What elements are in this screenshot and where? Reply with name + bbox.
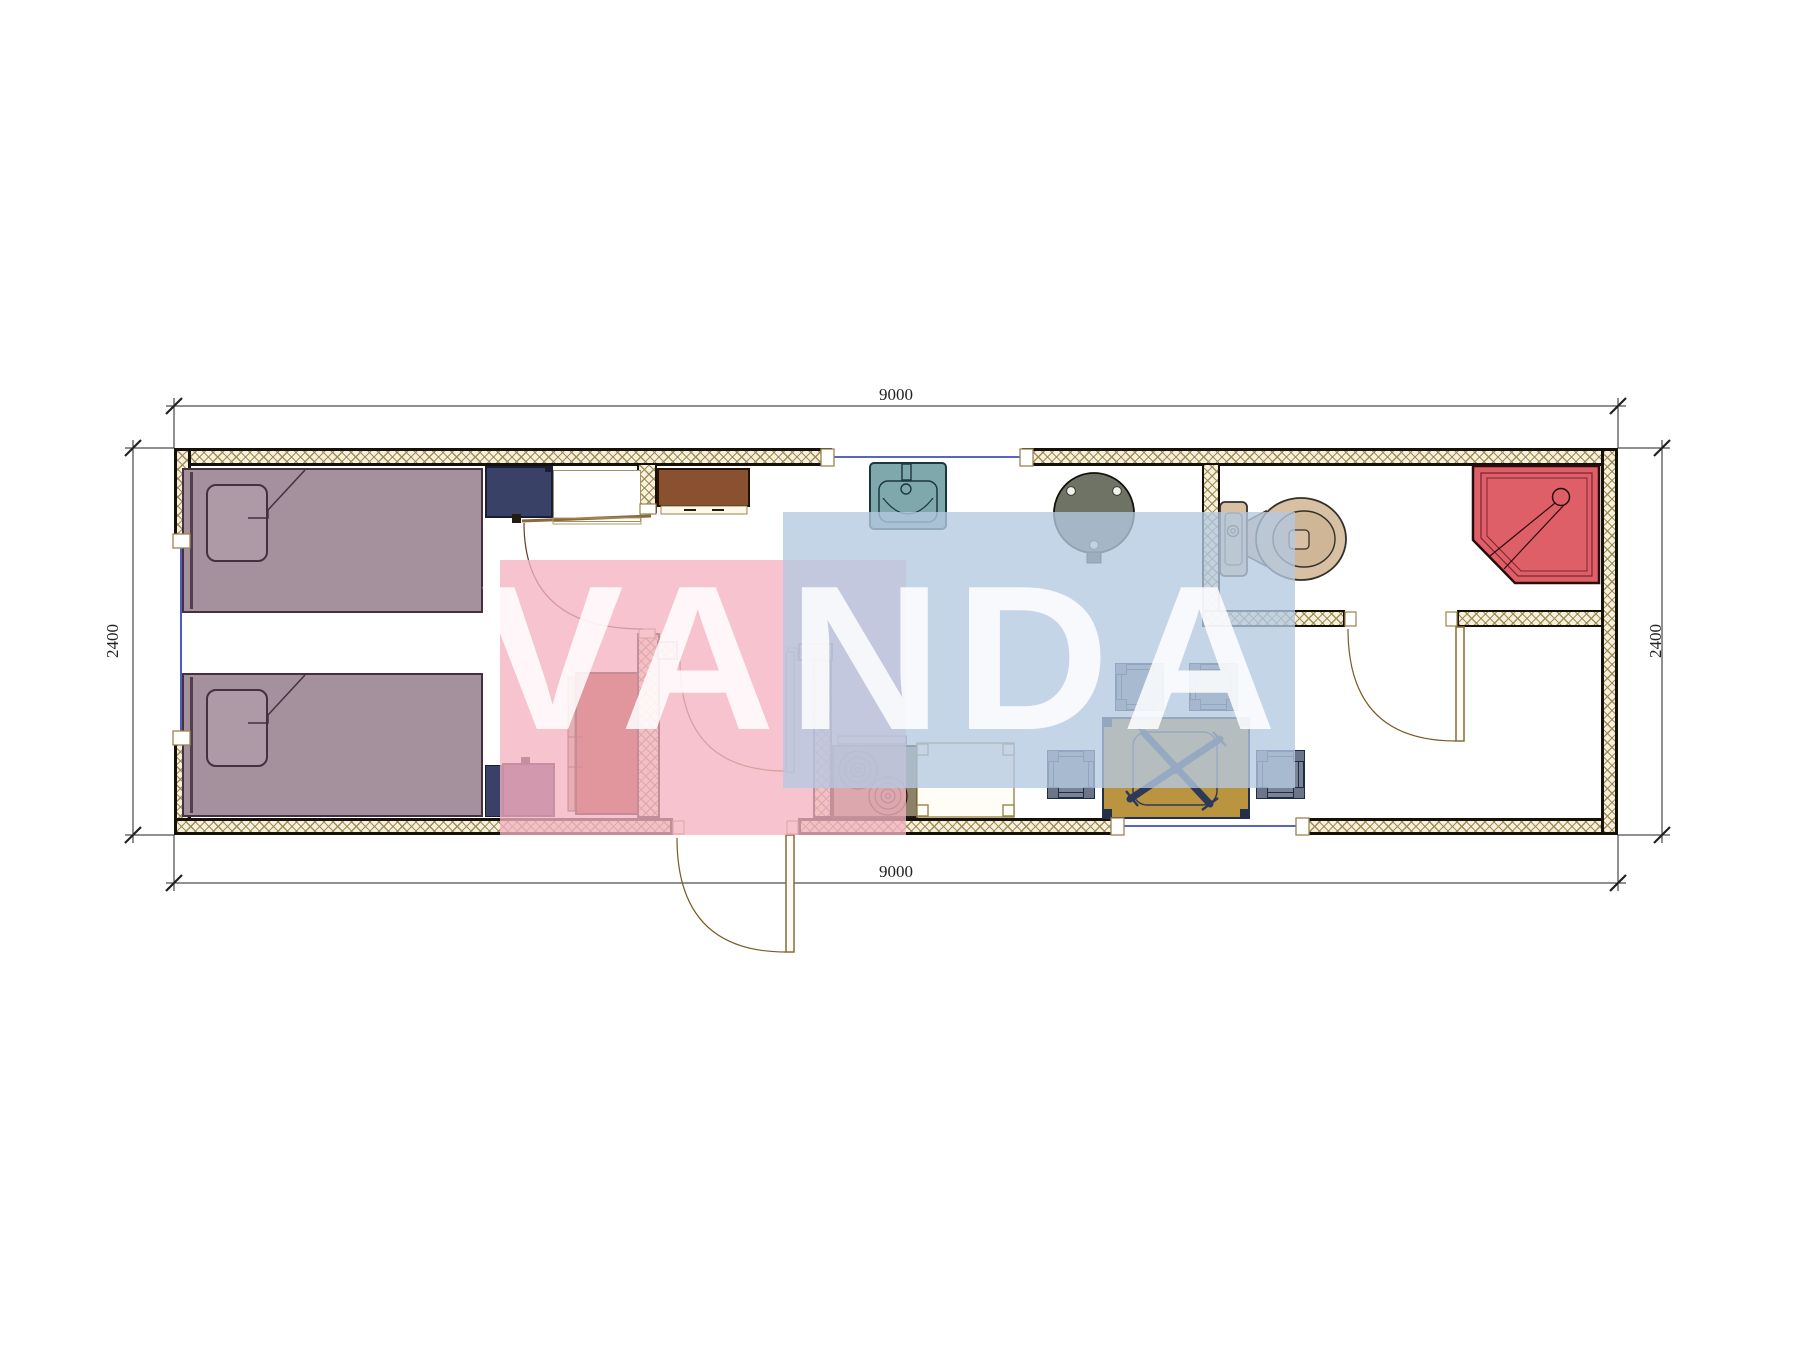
shower-head-icon [1553, 489, 1570, 506]
bed-folds [248, 470, 305, 723]
dim-right-label: 2400 [1646, 624, 1665, 658]
bathroom-door-jamb [1446, 612, 1457, 626]
bedroom-door-hinge [512, 514, 521, 523]
nightstand-knob [545, 466, 553, 472]
bedroom-door-jamb [640, 504, 656, 514]
cabinet-front-edge [661, 506, 747, 514]
watermark-text: VANDA [453, 548, 1316, 773]
entrance-door-swing [677, 838, 786, 952]
corner-shower [1473, 466, 1599, 583]
table-dot [1113, 487, 1122, 496]
sink-tap-icon [901, 484, 911, 494]
sink-faucet [902, 464, 911, 480]
table-dot [1067, 487, 1076, 496]
dim-top-label: 9000 [879, 385, 913, 404]
floor-plan-canvas: 9000 9000 2400 2400 [0, 0, 1800, 1350]
bathroom-door-leaf [1456, 627, 1464, 741]
bathroom-door-swing [1348, 629, 1456, 741]
bathroom-door-jamb [1345, 612, 1356, 626]
shower-tray [1473, 466, 1599, 583]
dim-left-label: 2400 [103, 624, 122, 658]
entrance-door-leaf [786, 835, 794, 952]
dim-bottom-label: 9000 [879, 862, 913, 881]
